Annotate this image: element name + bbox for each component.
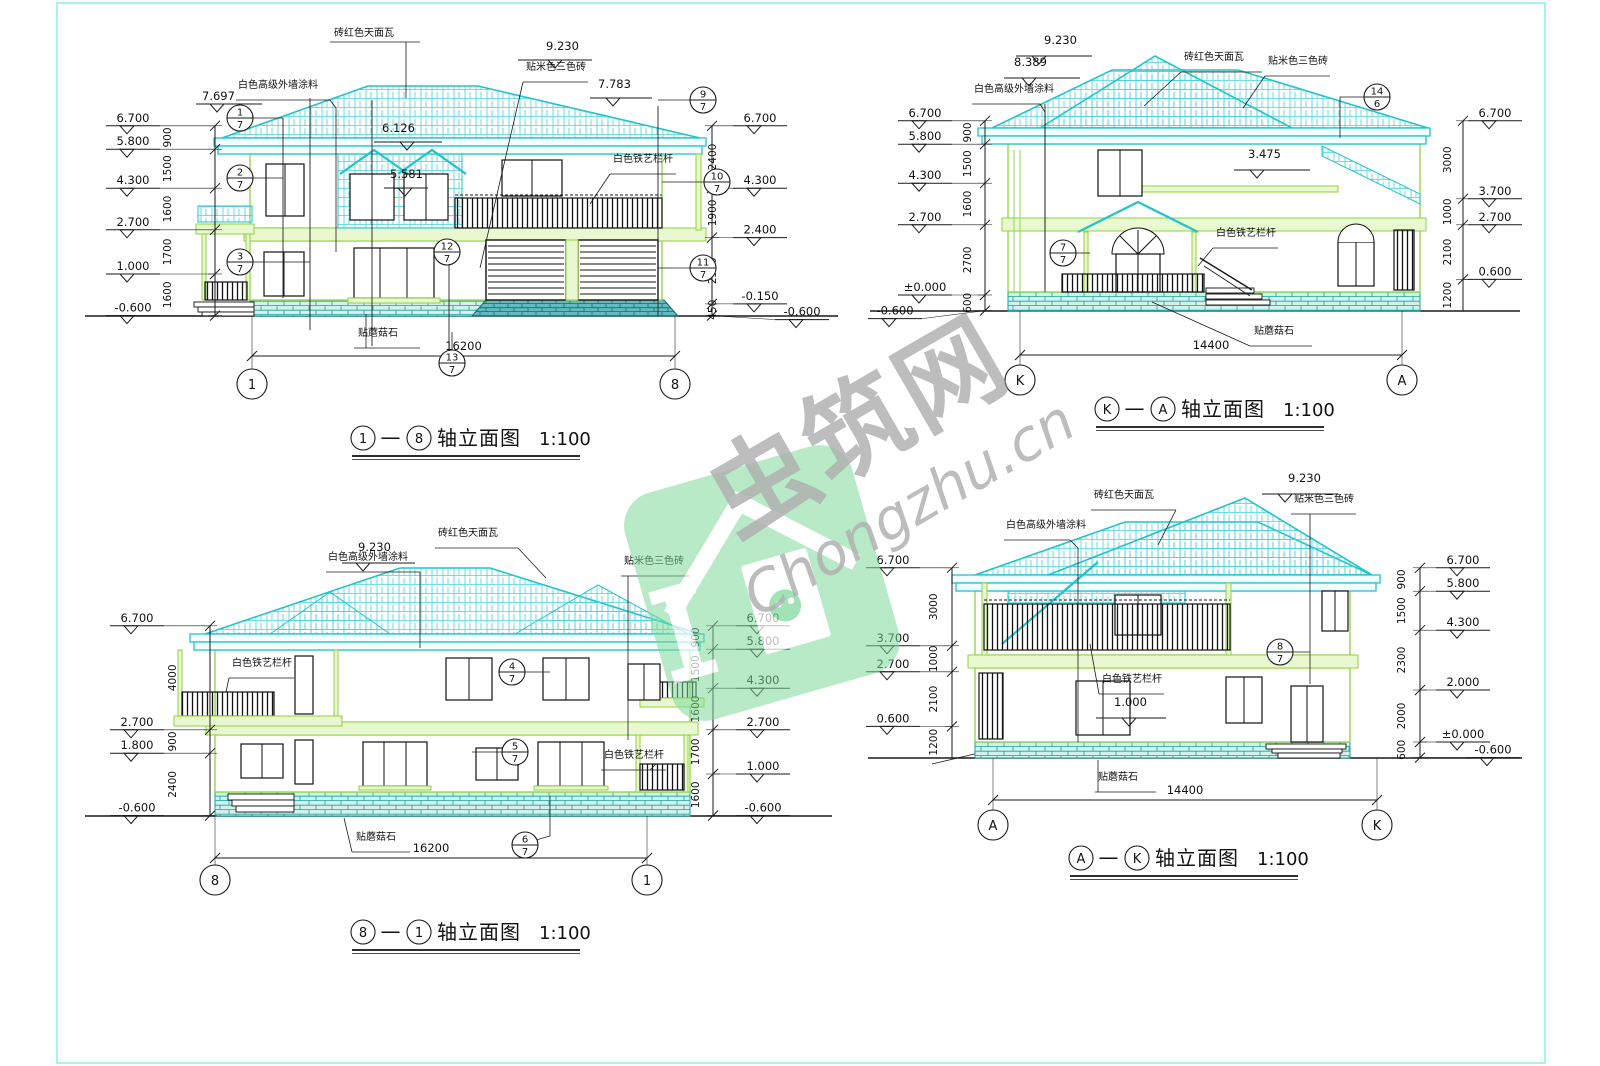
material-label: 砖红色天面瓦 [334, 26, 394, 39]
title-axis-to: 8 [415, 432, 423, 447]
detail-bubble-num: 9 [700, 90, 706, 101]
dim-label: 3000 [928, 593, 940, 620]
detail-bubble-sheet: 7 [1060, 255, 1066, 266]
level-label: -0.600 [114, 301, 151, 315]
detail-bubble-num: 13 [446, 353, 459, 364]
drawing-sheet: 6.7005.8004.3002.7001.000-0.600900150016… [0, 0, 1600, 1066]
spot-level: 5.581 [390, 167, 423, 181]
dim-label: 1600 [162, 196, 174, 223]
level-label: 2.700 [1479, 210, 1512, 224]
detail-bubble-num: 14 [1371, 87, 1384, 98]
balcony-railing [182, 692, 274, 716]
level-label: 6.700 [121, 611, 154, 625]
level-label: 4.300 [909, 168, 942, 182]
level-label: ±0.000 [1442, 727, 1485, 741]
detail-bubble-num: 11 [697, 258, 710, 269]
detail-bubble-sheet: 7 [700, 102, 706, 113]
material-label: 白色铁艺栏杆 [232, 656, 292, 669]
dim-label: 1600 [162, 281, 174, 308]
spot-level: 9.230 [1044, 33, 1077, 47]
main-roof [222, 86, 700, 138]
elevation-4-drawing [868, 498, 1522, 764]
title-dash: — [381, 425, 402, 449]
title-axis-from: 8 [359, 926, 367, 941]
material-label: 贴蘑菇石 [1254, 324, 1294, 337]
level-label: 2.000 [1447, 675, 1480, 689]
material-label: 贴米色三色砖 [1268, 54, 1328, 67]
dim-label: 2100 [1442, 239, 1454, 266]
title-axis-from: K [1103, 403, 1112, 418]
level-label: 1.800 [121, 738, 154, 752]
title-text: 轴立面图 [1181, 397, 1265, 421]
dim-label: 3000 [1442, 146, 1454, 173]
title-axis-to: 1 [415, 926, 423, 941]
dim-label: 1600 [690, 781, 702, 808]
dim-label: 1500 [1396, 597, 1408, 624]
material-label: 白色铁艺栏杆 [1216, 226, 1276, 239]
span-dim: 14400 [1193, 338, 1230, 352]
material-label: 白色铁艺栏杆 [604, 748, 664, 761]
detail-bubble-num: 6 [522, 835, 528, 846]
dim-label: 2100 [928, 686, 940, 713]
detail-bubble-num: 4 [509, 662, 515, 673]
title-axis-to: A [1159, 403, 1168, 418]
level-label: 2.400 [744, 223, 777, 237]
axis-label: A [989, 819, 998, 834]
terrace-railing [984, 604, 1230, 650]
material-label: 白色高级外墙涂料 [328, 550, 408, 563]
material-label: 贴米色三色砖 [1294, 492, 1354, 505]
detail-bubble-sheet: 6 [1374, 99, 1380, 110]
level-label: 2.700 [121, 715, 154, 729]
spot-level: 9.230 [1288, 471, 1321, 485]
axis-label: K [1373, 819, 1382, 834]
dim-label: 600 [1396, 740, 1408, 760]
material-label: 砖红色天面瓦 [1094, 488, 1154, 501]
dim-label: 2400 [167, 771, 179, 798]
title-scale: 1:100 [1283, 400, 1335, 421]
dim-label: 1500 [162, 155, 174, 182]
level-label: 2.700 [117, 215, 150, 229]
detail-bubble-sheet: 7 [522, 847, 528, 858]
material-label: 砖红色天面瓦 [1184, 50, 1244, 63]
level-label: ±0.000 [904, 280, 947, 294]
elevation-1-drawing [85, 86, 838, 346]
material-label: 白色铁艺栏杆 [613, 152, 673, 165]
detail-bubble-sheet: 7 [237, 264, 243, 275]
level-label: 6.700 [909, 106, 942, 120]
level-label: 3.700 [1479, 184, 1512, 198]
level-label: -0.600 [118, 801, 155, 815]
level-label: -0.600 [876, 304, 913, 318]
level-label: 1.000 [117, 259, 150, 273]
dim-label: 1500 [962, 150, 974, 177]
detail-bubble-sheet: 7 [509, 674, 515, 685]
detail-bubble-sheet: 7 [714, 184, 720, 195]
dim-label: 2400 [707, 144, 719, 171]
porch-railing [640, 764, 684, 790]
dim-label: 1900 [707, 200, 719, 227]
title-text: 轴立面图 [1155, 846, 1239, 870]
material-label: 白色高级外墙涂料 [1006, 518, 1086, 531]
material-label: 白色高级外墙涂料 [974, 82, 1054, 95]
span-dim: 14400 [1167, 783, 1204, 797]
dim-label: 1700 [162, 239, 174, 266]
detail-bubble-num: 2 [237, 168, 243, 179]
spot-level: 1.000 [1114, 695, 1147, 709]
axis-label: 1 [248, 378, 256, 393]
detail-bubble-num: 8 [1277, 642, 1283, 653]
level-label: 2.700 [747, 715, 780, 729]
detail-bubble-sheet: 7 [449, 365, 455, 376]
level-label: 6.700 [1479, 106, 1512, 120]
level-label: 5.800 [1447, 576, 1480, 590]
material-label: 贴蘑菇石 [1098, 770, 1138, 783]
detail-bubble-sheet: 7 [444, 254, 450, 265]
driveway-apron [472, 300, 678, 316]
detail-bubble-num: 10 [711, 172, 724, 183]
detail-bubble-sheet: 7 [1277, 654, 1283, 665]
dim-label: 1000 [1442, 198, 1454, 225]
dim-label: 1200 [928, 729, 940, 756]
material-label: 贴蘑菇石 [358, 326, 398, 339]
level-label: -0.600 [783, 305, 820, 319]
spot-level: 6.126 [382, 121, 415, 135]
detail-bubble-num: 3 [237, 252, 243, 263]
title-axis-from: A [1077, 852, 1086, 867]
level-label: -0.150 [741, 289, 778, 303]
level-label: 1.000 [747, 759, 780, 773]
detail-bubble-num: 12 [441, 242, 454, 253]
level-label: 4.300 [117, 173, 150, 187]
spot-level: 7.697 [202, 89, 235, 103]
detail-bubble-sheet: 7 [237, 180, 243, 191]
level-label: -0.600 [744, 801, 781, 815]
dim-label: 1200 [1442, 282, 1454, 309]
dim-label: 2300 [1396, 647, 1408, 674]
title-dash: — [381, 919, 402, 943]
material-label: 白色铁艺栏杆 [1102, 672, 1162, 685]
title-scale: 1:100 [539, 429, 591, 450]
title-axis-to: K [1133, 852, 1142, 867]
axis-label: 1 [643, 874, 651, 889]
detail-bubble-sheet: 7 [512, 754, 518, 765]
dim-label: 900 [1396, 569, 1408, 589]
detail-bubble-sheet: 7 [237, 120, 243, 131]
axis-label: 8 [671, 378, 679, 393]
dim-label: 900 [167, 731, 179, 751]
porch-railing [205, 282, 247, 300]
balcony-railing [455, 198, 662, 228]
detail-bubble-sheet: 7 [700, 270, 706, 281]
spot-level: 8.389 [1014, 55, 1047, 69]
level-label: 0.600 [877, 711, 910, 725]
spot-level: 3.475 [1248, 147, 1281, 161]
title-dash: — [1125, 396, 1146, 420]
material-label: 白色高级外墙涂料 [238, 78, 318, 91]
dim-label: 450 [707, 300, 719, 320]
level-label: 5.800 [117, 134, 150, 148]
material-label: 砖红色天面瓦 [438, 526, 498, 539]
dim-label: 900 [162, 127, 174, 147]
title-text: 轴立面图 [437, 920, 521, 944]
axis-label: A [1398, 374, 1407, 389]
cad-canvas: 6.7005.8004.3002.7001.000-0.600900150016… [0, 0, 1600, 1066]
title-dash: — [1099, 845, 1120, 869]
level-label: 4.300 [744, 173, 777, 187]
level-label: 6.700 [744, 111, 777, 125]
material-label: 贴蘑菇石 [356, 830, 396, 843]
level-label: 4.300 [1447, 615, 1480, 629]
title-axis-from: 1 [359, 432, 367, 447]
level-label: 2.700 [909, 210, 942, 224]
span-dim: 16200 [413, 841, 450, 855]
detail-bubble-num: 1 [237, 108, 243, 119]
detail-bubble-num: 5 [512, 742, 518, 753]
title-scale: 1:100 [1257, 849, 1309, 870]
level-label: 6.700 [117, 111, 150, 125]
material-label: 贴米色三色砖 [526, 60, 586, 73]
porch-railing [1062, 274, 1204, 292]
dim-label: 1700 [690, 739, 702, 766]
level-label: 0.600 [1479, 264, 1512, 278]
dim-label: 2700 [962, 247, 974, 274]
dim-label: 2000 [1396, 703, 1408, 730]
spot-level: 9.230 [546, 39, 579, 53]
dim-label: 1600 [962, 191, 974, 218]
detail-bubble-num: 7 [1060, 243, 1066, 254]
dim-label: 1000 [928, 645, 940, 672]
level-label: -0.600 [1474, 743, 1511, 757]
dim-label: 4000 [167, 664, 179, 691]
level-label: 5.800 [909, 129, 942, 143]
spot-level: 7.783 [598, 77, 631, 91]
axis-label: 8 [211, 874, 219, 889]
dim-label: 900 [962, 122, 974, 142]
title-scale: 1:100 [539, 923, 591, 944]
title-text: 轴立面图 [437, 426, 521, 450]
level-label: 6.700 [1447, 553, 1480, 567]
